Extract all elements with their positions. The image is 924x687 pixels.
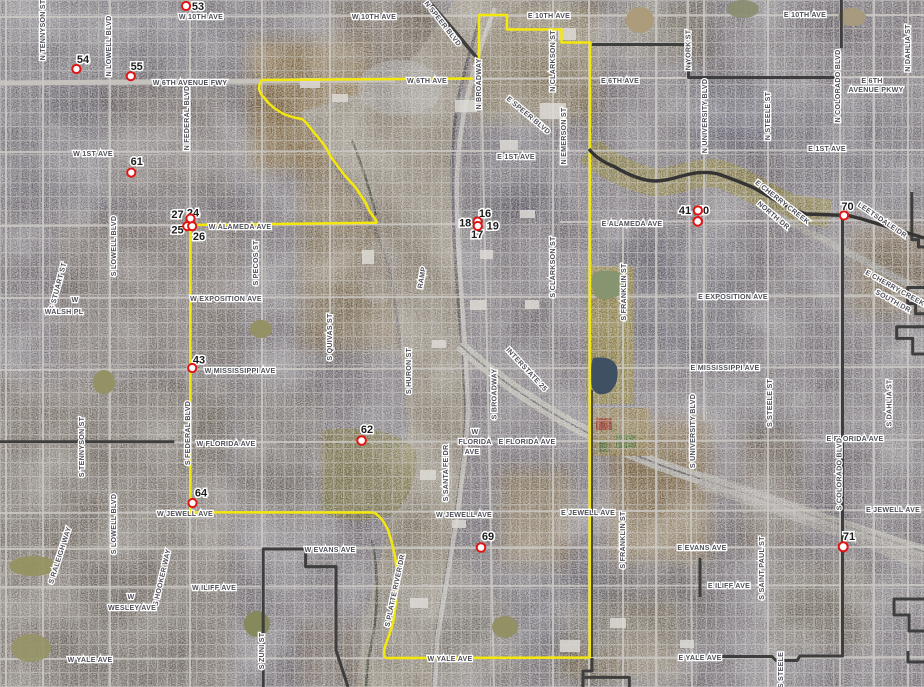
svg-text:W MISSISSIPPI AVE: W MISSISSIPPI AVE xyxy=(205,367,276,375)
svg-text:E EXPOSITION AVE: E EXPOSITION AVE xyxy=(698,293,768,301)
svg-text:E JEWELL AVE: E JEWELL AVE xyxy=(866,506,920,514)
svg-text:S TENNYSON ST: S TENNYSON ST xyxy=(78,416,86,477)
svg-text:S FRANKLIN ST: S FRANKLIN ST xyxy=(620,263,628,321)
svg-text:S LOWELL BLVD: S LOWELL BLVD xyxy=(110,494,118,555)
svg-text:S HURON ST: S HURON ST xyxy=(405,347,413,394)
svg-text:54: 54 xyxy=(77,54,90,66)
svg-text:S CLARKSON ST: S CLARKSON ST xyxy=(549,236,557,298)
svg-text:FLORIDA: FLORIDA xyxy=(458,438,491,446)
svg-text:W 6TH AVE: W 6TH AVE xyxy=(407,77,447,85)
svg-text:S LOWELL BLVD: S LOWELL BLVD xyxy=(110,216,118,277)
svg-text:E 6TH: E 6TH xyxy=(861,77,882,85)
svg-text:E 10TH AVE: E 10TH AVE xyxy=(528,12,570,20)
svg-text:S UNIVERSITY BLVD: S UNIVERSITY BLVD xyxy=(689,394,697,468)
svg-text:W YALE AVE: W YALE AVE xyxy=(427,655,472,663)
svg-text:N DAHLIA ST: N DAHLIA ST xyxy=(904,24,912,72)
svg-text:N STEELE ST: N STEELE ST xyxy=(764,91,772,140)
svg-text:W FLORIDA AVE: W FLORIDA AVE xyxy=(197,440,256,448)
svg-text:61: 61 xyxy=(131,156,143,168)
svg-text:W JEWELL AVE: W JEWELL AVE xyxy=(157,510,213,518)
svg-text:W ALAMEDA AVE: W ALAMEDA AVE xyxy=(209,223,272,231)
svg-text:S ZUNI ST: S ZUNI ST xyxy=(258,632,266,669)
svg-text:S SANTA FE DR: S SANTA FE DR xyxy=(442,445,450,502)
svg-text:S DAHLIA ST: S DAHLIA ST xyxy=(886,379,894,426)
svg-text:W EXPOSITION AVE: W EXPOSITION AVE xyxy=(190,295,262,303)
svg-text:62: 62 xyxy=(361,424,373,436)
svg-text:S SAINT PAUL ST: S SAINT PAUL ST xyxy=(758,536,766,600)
svg-text:W YALE AVE: W YALE AVE xyxy=(67,656,112,664)
svg-text:N CLARKSON ST: N CLARKSON ST xyxy=(549,30,557,92)
svg-text:E JEWELL AVE: E JEWELL AVE xyxy=(561,509,615,517)
svg-text:E 10TH AVE: E 10TH AVE xyxy=(784,11,826,19)
svg-text:19: 19 xyxy=(487,221,499,233)
svg-text:W: W xyxy=(128,593,135,601)
svg-text:69: 69 xyxy=(482,531,494,543)
svg-text:N FEDERAL BLVD: N FEDERAL BLVD xyxy=(183,86,191,151)
svg-text:W 1ST AVE: W 1ST AVE xyxy=(73,150,113,158)
svg-text:W 10TH AVE: W 10TH AVE xyxy=(179,13,223,21)
svg-text:S FEDERAL BLVD: S FEDERAL BLVD xyxy=(184,401,192,465)
svg-text:S FRANKLIN ST: S FRANKLIN ST xyxy=(619,511,627,569)
svg-text:N COLORADO BLVD: N COLORADO BLVD xyxy=(834,50,842,123)
svg-text:N BROADWAY: N BROADWAY xyxy=(475,58,483,109)
svg-text:N EMERSON ST: N EMERSON ST xyxy=(560,107,568,164)
svg-text:N TENNYSON ST: N TENNYSON ST xyxy=(39,0,47,60)
svg-text:WALSH PL: WALSH PL xyxy=(45,308,84,316)
svg-text:W EVANS AVE: W EVANS AVE xyxy=(304,546,355,554)
svg-text:N UNIVERSITY BLVD: N UNIVERSITY BLVD xyxy=(701,79,709,154)
svg-text:26: 26 xyxy=(193,231,205,243)
svg-text:AVENUE PKWY: AVENUE PKWY xyxy=(848,86,903,94)
svg-text:N LOWELL BLVD: N LOWELL BLVD xyxy=(105,16,113,77)
svg-text:AVE: AVE xyxy=(465,448,480,456)
svg-text:55: 55 xyxy=(131,61,143,73)
svg-text:W: W xyxy=(72,296,79,304)
svg-text:41: 41 xyxy=(679,205,691,217)
svg-text:27: 27 xyxy=(171,209,183,221)
svg-text:W ILIFF AVE: W ILIFF AVE xyxy=(192,584,236,592)
svg-text:E 1ST AVE: E 1ST AVE xyxy=(808,145,846,153)
svg-text:S PECOS ST: S PECOS ST xyxy=(252,240,260,285)
svg-text:S STEELE ST: S STEELE ST xyxy=(766,379,774,427)
svg-text:E MISSISSIPPI AVE: E MISSISSIPPI AVE xyxy=(691,364,760,372)
svg-text:S BROADWAY: S BROADWAY xyxy=(491,369,499,420)
svg-text:71: 71 xyxy=(843,531,855,543)
svg-text:25: 25 xyxy=(171,225,183,237)
svg-text:E YALE AVE: E YALE AVE xyxy=(678,654,721,662)
svg-text:E 1ST AVE: E 1ST AVE xyxy=(497,153,535,161)
svg-text:E EVANS AVE: E EVANS AVE xyxy=(677,544,726,552)
svg-text:E ALAMEDA AVE: E ALAMEDA AVE xyxy=(602,220,663,228)
svg-text:WESLEY AVE: WESLEY AVE xyxy=(108,604,156,612)
svg-text:W 10TH AVE: W 10TH AVE xyxy=(352,13,396,21)
svg-text:18: 18 xyxy=(459,218,471,230)
svg-text:E 6TH AVE: E 6TH AVE xyxy=(601,77,639,85)
svg-text:W JEWELL AVE: W JEWELL AVE xyxy=(436,511,492,519)
svg-text:E ILIFF AVE: E ILIFF AVE xyxy=(708,582,750,590)
svg-text:N YORK ST: N YORK ST xyxy=(685,29,693,70)
svg-text:S COLORADO BLVD: S COLORADO BLVD xyxy=(836,438,844,511)
svg-text:53: 53 xyxy=(192,1,204,13)
svg-text:64: 64 xyxy=(195,488,208,500)
svg-text:S STEELE: S STEELE xyxy=(777,652,785,687)
svg-text:S QUIVAS ST: S QUIVAS ST xyxy=(326,313,334,361)
svg-text:E FLORIDA AVE: E FLORIDA AVE xyxy=(499,438,556,446)
svg-text:W: W xyxy=(472,428,479,436)
